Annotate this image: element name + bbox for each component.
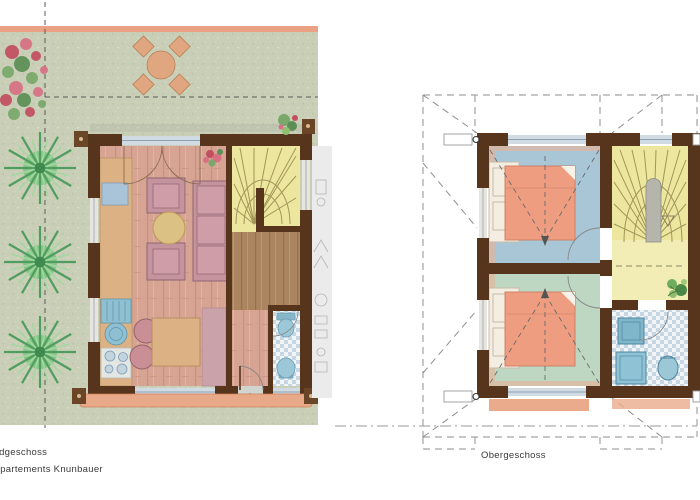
hallway	[232, 232, 300, 310]
bath-wall	[666, 300, 688, 310]
marker-circle	[473, 137, 479, 143]
mattress	[505, 292, 575, 366]
wall-shadow	[90, 124, 312, 132]
entrance-walkway	[80, 394, 312, 407]
armchair-cushion	[153, 249, 179, 274]
hall-wall	[226, 232, 232, 308]
partition-wall	[202, 308, 226, 386]
wall	[88, 243, 100, 298]
bath-wall	[612, 300, 638, 310]
bath-wall	[268, 305, 300, 311]
sofa-cushion	[197, 216, 225, 244]
project-label: Appartements Knunbauer	[0, 464, 103, 475]
kitchen-basin	[105, 323, 127, 345]
bed-1	[489, 162, 575, 242]
bath-wall	[268, 311, 273, 386]
wall	[586, 133, 640, 146]
marker-box	[693, 134, 700, 145]
stair-wall	[226, 146, 232, 232]
dining-chair	[130, 345, 154, 369]
upper-floor-label: Obergeschoss	[481, 450, 546, 461]
marker-box	[444, 134, 472, 145]
wall-between-bedrooms	[477, 263, 600, 274]
kitchen-sink	[101, 299, 131, 323]
exterior-strip	[489, 399, 589, 411]
wall	[600, 260, 612, 276]
wall	[300, 210, 312, 398]
wall	[300, 134, 312, 160]
hall-wall	[226, 308, 232, 386]
ground-floor-label: Erdgeschoss	[0, 447, 47, 458]
ground-floor-plan	[0, 2, 332, 428]
floor-plan-sheet: Erdgeschoss Appartements Knunbauer Oberg…	[0, 0, 700, 500]
washbasin	[277, 358, 295, 378]
bed-2	[489, 288, 575, 368]
wall	[477, 386, 508, 398]
wall	[200, 134, 312, 146]
wall	[688, 133, 700, 398]
exterior-strip	[612, 399, 690, 409]
stair-stub-wall	[256, 226, 300, 232]
stair-stub-wall	[256, 188, 264, 232]
sofa-cushion	[197, 246, 225, 274]
dining-table	[152, 318, 200, 366]
stove	[101, 348, 131, 378]
marker-box	[693, 391, 700, 402]
mattress	[505, 166, 575, 240]
terrace-table	[147, 51, 175, 79]
coffee-table	[153, 212, 185, 244]
sideboard	[102, 183, 128, 205]
marker-box	[444, 391, 472, 402]
toilet	[658, 356, 678, 380]
marker-circle	[473, 394, 479, 400]
shower	[616, 352, 646, 384]
upper-floor-plan	[335, 95, 700, 449]
sofa-cushion	[197, 186, 225, 214]
wall	[600, 308, 612, 398]
floor-plan-drawing	[0, 0, 700, 500]
neighbour-unit-ghost	[312, 146, 332, 398]
stair-rail	[646, 179, 661, 242]
armchair-cushion	[153, 184, 179, 208]
garden-edge-strip	[0, 26, 318, 32]
kitchen	[100, 158, 132, 386]
wall	[88, 134, 100, 198]
wall	[600, 133, 612, 228]
